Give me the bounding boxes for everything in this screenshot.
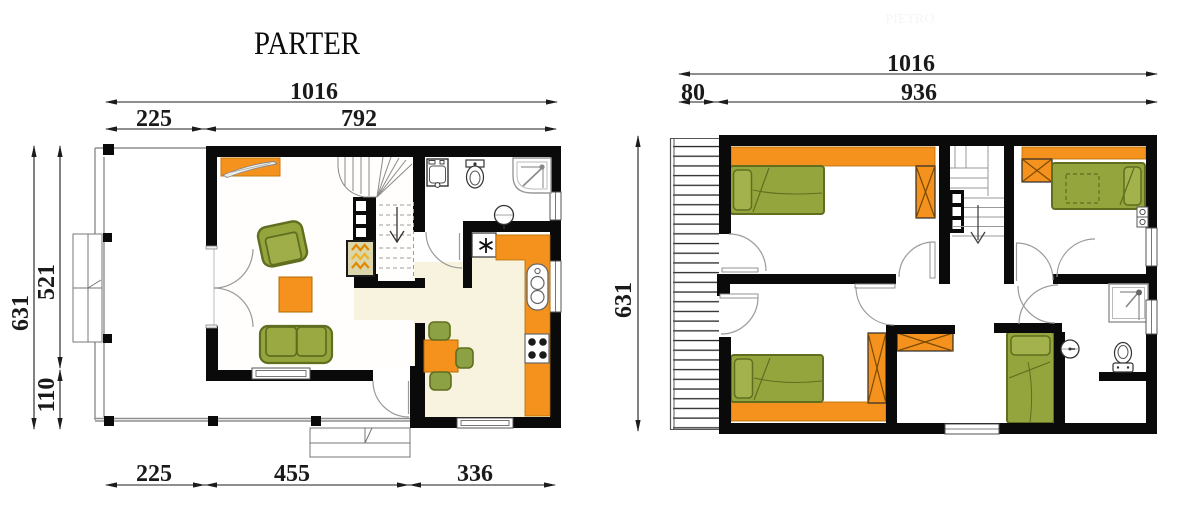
svg-text:936: 936 [901,80,937,106]
svg-text:631: 631 [8,295,34,331]
svg-text:521: 521 [34,264,60,300]
svg-text:80: 80 [681,80,705,106]
svg-text:631: 631 [611,282,637,318]
svg-text:PARTER: PARTER [254,26,360,62]
svg-text:792: 792 [341,106,377,132]
svg-text:225: 225 [136,106,172,132]
svg-text:1016: 1016 [290,79,338,105]
svg-text:336: 336 [457,461,493,487]
svg-text:1016: 1016 [887,51,935,77]
svg-text:225: 225 [136,461,172,487]
svg-text:455: 455 [274,461,310,487]
svg-text:110: 110 [34,378,60,413]
svg-text:PIETRO: PIETRO [886,12,935,27]
